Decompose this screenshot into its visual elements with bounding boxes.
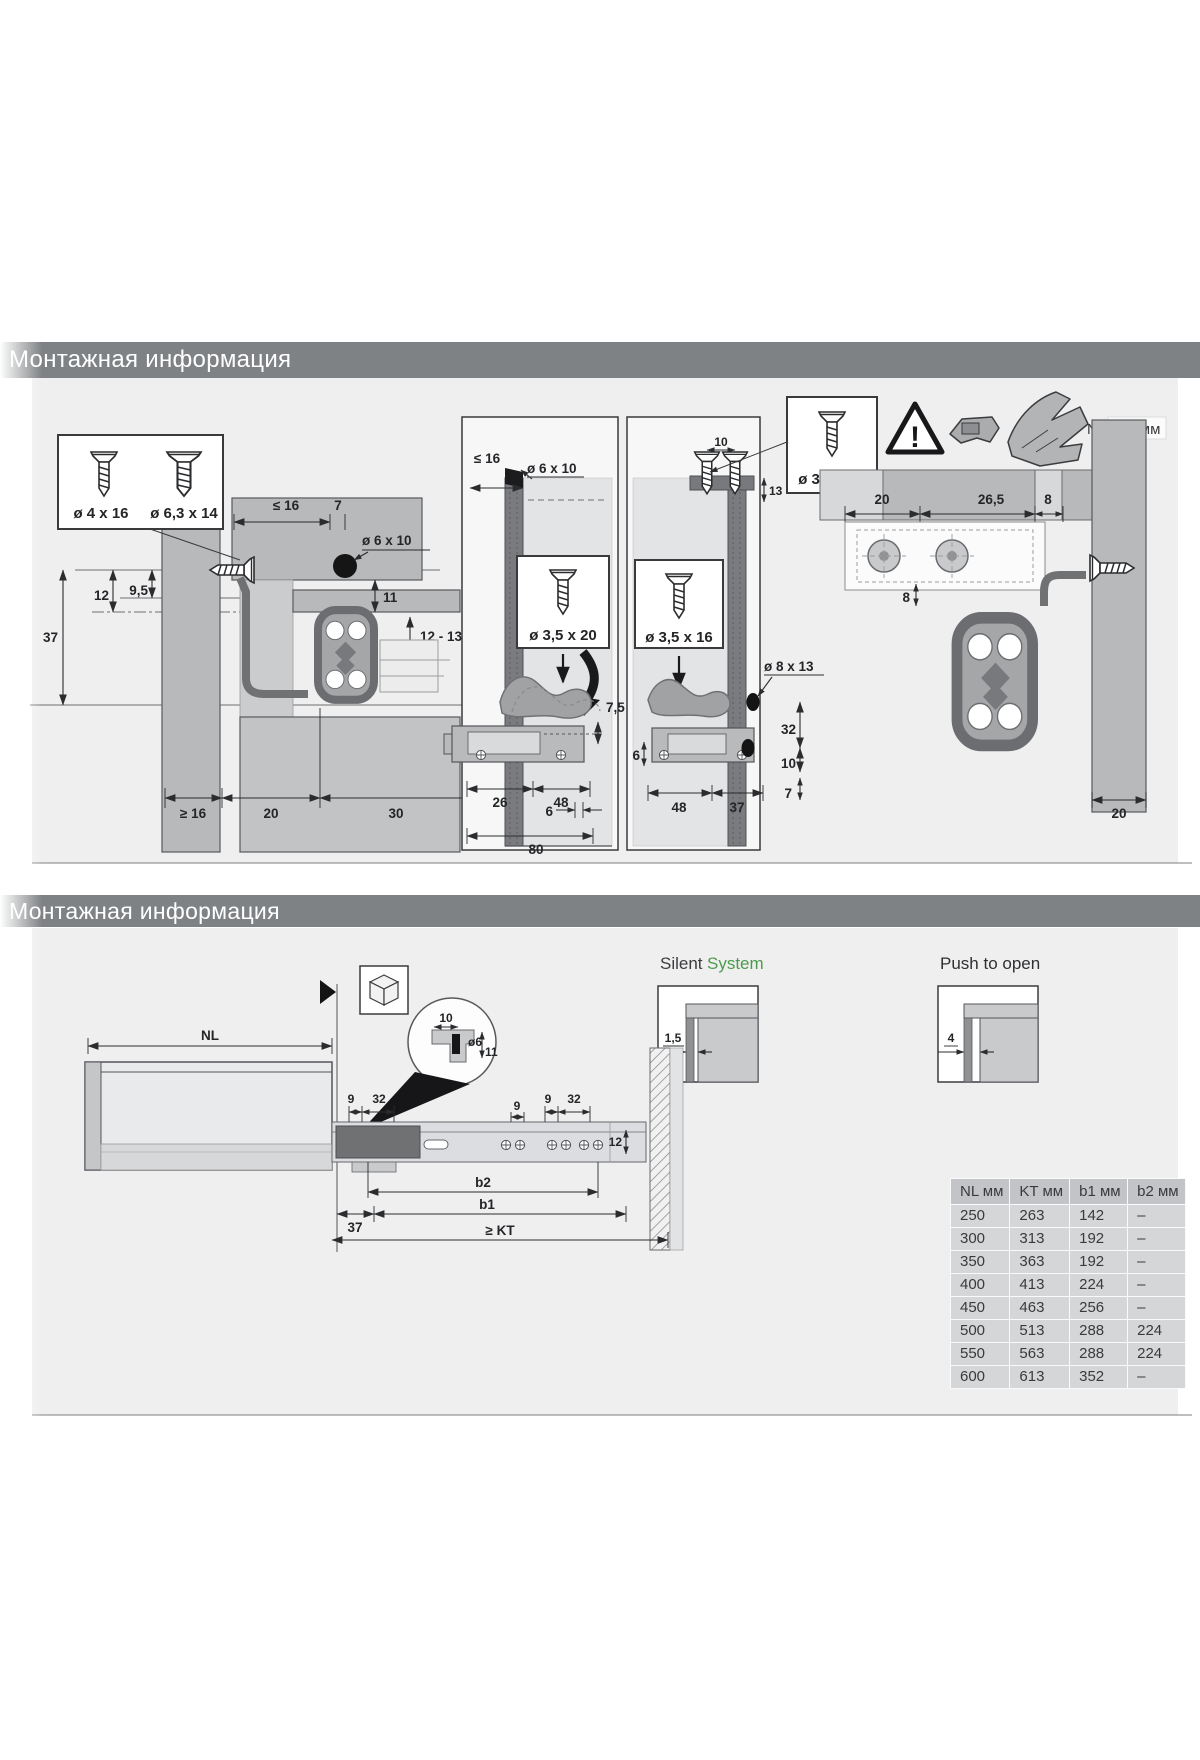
dim-7b-label: 7	[784, 786, 792, 801]
panelB-screw-label: ø 3,5 x 16	[645, 629, 713, 646]
dim-32b-label: 32	[567, 1092, 581, 1106]
dim-7-label: 7	[334, 498, 342, 513]
bottom-panel	[240, 717, 460, 852]
table-row: 450463256–	[951, 1297, 1185, 1319]
table-cell: 550	[951, 1343, 1009, 1365]
hole-8x13-label: ø 8 x 13	[764, 659, 814, 674]
table-header-cell: b1 мм	[1070, 1179, 1127, 1204]
table-cell: 513	[1010, 1320, 1069, 1342]
silent-label: Silent	[660, 954, 703, 973]
table-row: 350363192–	[951, 1251, 1185, 1273]
dia6-label: ø6	[468, 1035, 482, 1049]
manual-page: Монтажная информация	[0, 0, 1200, 1760]
dim-48-label: 48	[553, 795, 569, 810]
dim-20b-label: 20	[1111, 806, 1126, 821]
table-cell: 142	[1070, 1205, 1127, 1227]
table-row: 550563288224	[951, 1343, 1185, 1365]
drawer-fixing-panel-a: ≤ 16 ø 6 x 10 ø 3,5 x 20 7,5	[444, 417, 625, 857]
cube-icon	[370, 975, 398, 1005]
table-cell: 224	[1070, 1274, 1127, 1296]
section2-title: Монтажная информация	[0, 895, 1200, 927]
installation-drawing-1: ø 6 x 10 ≤ 16 7 12 9,5 37 11 12 - 13	[0, 375, 1200, 867]
dim-37b-label: 37	[729, 800, 744, 815]
table-cell: 400	[951, 1274, 1009, 1296]
nl-dim-label: NL	[201, 1028, 219, 1043]
table-cell: –	[1128, 1228, 1185, 1250]
dim-48b-label: 48	[671, 800, 687, 815]
table-cell: –	[1128, 1205, 1185, 1227]
table-cell: 224	[1128, 1320, 1185, 1342]
dim-le16-label: ≤ 16	[273, 498, 300, 513]
dim-26-label: 26	[492, 795, 508, 810]
push-to-open-label: Push to open	[940, 954, 1040, 973]
system-label: System	[707, 954, 764, 973]
dim-10-callout-label: 10	[439, 1011, 453, 1025]
dim-6b-label: 6	[632, 748, 640, 763]
table-cell: 500	[951, 1320, 1009, 1342]
dimension-table: NL ммKT ммb1 ммb2 мм 250263142–300313192…	[950, 1178, 1186, 1389]
dim-12-label: 12	[609, 1135, 623, 1149]
dim-20r-label: 20	[874, 492, 889, 507]
dimension-table-body: 250263142–300313192–350363192–400413224–…	[951, 1205, 1185, 1388]
hole-size-label: ø 6 x 10	[362, 533, 412, 548]
table-cell: 300	[951, 1228, 1009, 1250]
scan-edge-gradient	[0, 0, 42, 1760]
runner-front-bracket	[336, 1126, 420, 1158]
rail-adapter-outline	[380, 640, 438, 692]
dowel-hole-6x10	[333, 554, 357, 578]
panelA-le16-label: ≤ 16	[474, 451, 501, 466]
dim-1-5-label: 1,5	[665, 1031, 682, 1045]
dim-8b-label: 8	[902, 590, 910, 605]
table-row: 250263142–	[951, 1205, 1185, 1227]
table-cell: 250	[951, 1205, 1009, 1227]
dim-9-5-label: 9,5	[129, 583, 148, 598]
dim-9b-label: 9	[514, 1099, 521, 1113]
table-cell: 288	[1070, 1343, 1127, 1365]
table-cell: 600	[951, 1366, 1009, 1388]
dim-b1-label: b1	[479, 1197, 495, 1212]
table-header-cell: KT мм	[1010, 1179, 1069, 1204]
warning-exclamation: !	[910, 421, 920, 454]
table-cell: –	[1128, 1366, 1185, 1388]
drawer-bottom-panel	[293, 590, 460, 612]
dim-11-callout-label: 11	[485, 1045, 498, 1059]
section1-title: Монтажная информация	[0, 342, 1200, 378]
table-cell: 192	[1070, 1251, 1127, 1273]
hole-8x13-upper	[747, 693, 760, 711]
dim-20-label: 20	[263, 806, 278, 821]
dim-kt-label: ≥ KT	[485, 1223, 515, 1238]
table-cell: 613	[1010, 1366, 1069, 1388]
cabinet-back-wall	[650, 1048, 670, 1250]
panelA-screw-label: ø 3,5 x 20	[529, 627, 597, 644]
table-cell: 563	[1010, 1343, 1069, 1365]
table-cell: 463	[1010, 1297, 1069, 1319]
table-cell: 413	[1010, 1274, 1069, 1296]
dim-37-label: 37	[43, 630, 58, 645]
table-row: 400413224–	[951, 1274, 1185, 1296]
dim-30-label: 30	[388, 806, 403, 821]
table-row: 300313192–	[951, 1228, 1185, 1250]
table-cell: –	[1128, 1251, 1185, 1273]
section2-header-bar: Монтажная информация	[0, 895, 1200, 927]
dim-9c-label: 9	[545, 1092, 552, 1106]
table-header-cell: NL мм	[951, 1179, 1009, 1204]
table-cell: 352	[1070, 1366, 1127, 1388]
dim-12-label: 12	[94, 588, 109, 603]
dim-265-label: 26,5	[978, 492, 1005, 507]
dim-37-label: 37	[347, 1220, 362, 1235]
table-cell: 313	[1010, 1228, 1069, 1250]
table-cell: 288	[1070, 1320, 1127, 1342]
screw-legend-box: ø 4 x 16 ø 6,3 x 14	[58, 435, 223, 529]
dim-10b-label: 10	[781, 756, 796, 771]
orientation-cube-box	[360, 966, 408, 1014]
dim-8r-label: 8	[1044, 492, 1052, 507]
dim-9a-label: 9	[348, 1092, 355, 1106]
dim-11-label: 11	[383, 590, 398, 605]
cabinet-side-right	[1092, 420, 1146, 812]
table-cell: 224	[1128, 1343, 1185, 1365]
screw-4x16-label: ø 4 x 16	[73, 505, 128, 522]
dim-13-label: 13	[769, 484, 783, 498]
dim-80-label: 80	[528, 842, 543, 857]
table-row: 500513288224	[951, 1320, 1185, 1342]
dim-32a-label: 32	[372, 1092, 386, 1106]
table-cell: 363	[1010, 1251, 1069, 1273]
dim-7-5-label: 7,5	[606, 700, 625, 715]
dim-4-label: 4	[948, 1031, 955, 1045]
panelA-hole-label: ø 6 x 10	[527, 461, 577, 476]
table-cell: 192	[1070, 1228, 1127, 1250]
dim-ge16-label: ≥ 16	[180, 806, 207, 821]
table-header-row: NL ммKT ммb1 ммb2 мм	[951, 1179, 1185, 1204]
table-cell: 350	[951, 1251, 1009, 1273]
dim-10-label: 10	[714, 435, 728, 449]
table-cell: 450	[951, 1297, 1009, 1319]
table-cell: 263	[1010, 1205, 1069, 1227]
screw-63x14-label: ø 6,3 x 14	[150, 505, 218, 522]
table-cell: –	[1128, 1274, 1185, 1296]
dim-6-label: 6	[545, 804, 553, 819]
dim-32-label: 32	[781, 722, 796, 737]
table-cell: 256	[1070, 1297, 1127, 1319]
dim-b2-label: b2	[475, 1175, 491, 1190]
table-row: 600613352–	[951, 1366, 1185, 1388]
section1-header-bar: Монтажная информация	[0, 342, 1200, 378]
table-cell: –	[1128, 1297, 1185, 1319]
runner-rail-cross-section-right	[957, 618, 1033, 746]
table-header-cell: b2 мм	[1128, 1179, 1185, 1204]
hole-8x13-lower	[742, 739, 755, 757]
runner-rail-cross-section	[318, 610, 374, 700]
